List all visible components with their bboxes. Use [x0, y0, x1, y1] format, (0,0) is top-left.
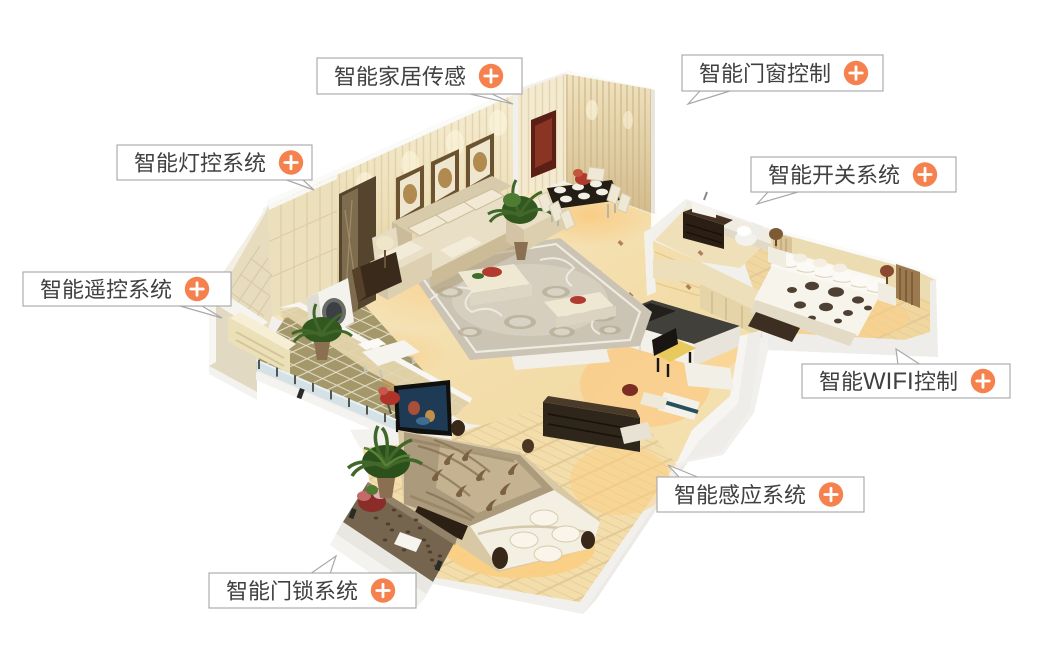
- svg-text:WIFI: WIFI: [863, 368, 914, 395]
